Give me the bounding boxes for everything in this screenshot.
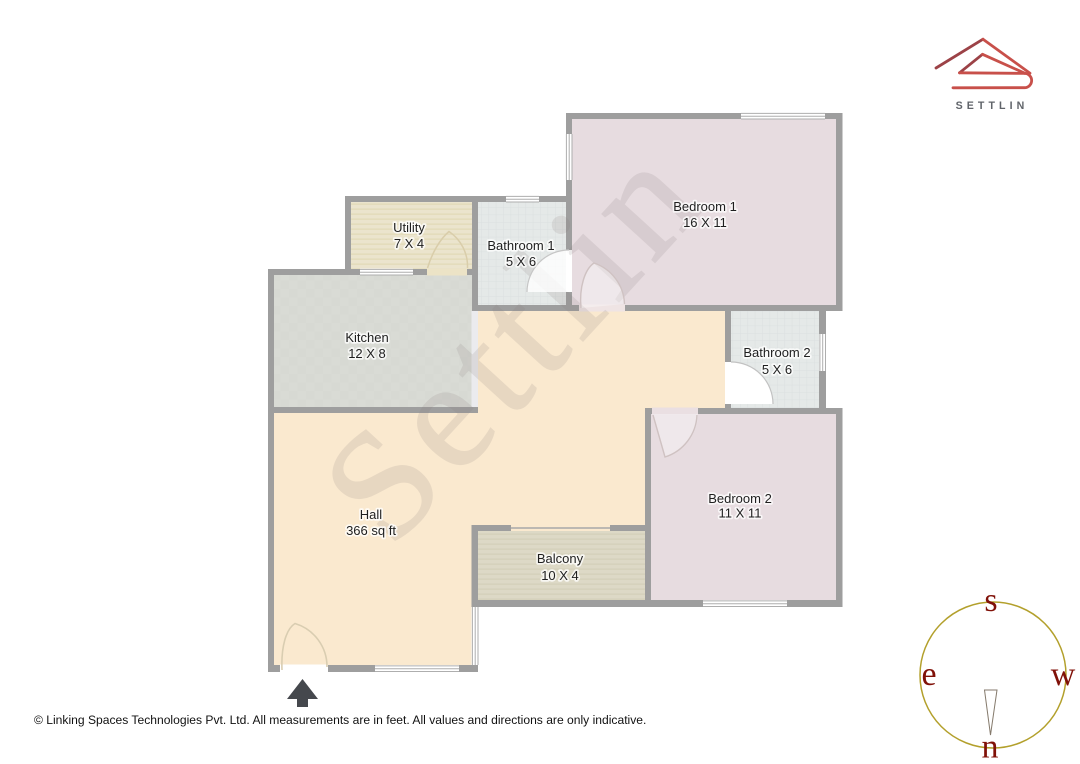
svg-text:7 X 4: 7 X 4 [394, 236, 424, 251]
svg-text:Bedroom 1: Bedroom 1 [673, 199, 737, 214]
svg-text:SETTLIN: SETTLIN [956, 100, 1029, 112]
svg-text:Bathroom 1: Bathroom 1 [487, 238, 554, 253]
svg-text:Hall: Hall [360, 507, 383, 522]
svg-text:Utility: Utility [393, 220, 425, 235]
svg-text:n: n [982, 729, 999, 764]
svg-text:s: s [984, 582, 997, 619]
svg-text:5 X 6: 5 X 6 [762, 362, 792, 377]
svg-text:16 X 11: 16 X 11 [683, 215, 727, 230]
svg-text:Bedroom 2: Bedroom 2 [708, 491, 772, 506]
svg-text:12 X 8: 12 X 8 [348, 346, 386, 361]
svg-text:366 sq ft: 366 sq ft [346, 523, 396, 538]
svg-text:w: w [1051, 656, 1076, 693]
svg-text:Balcony: Balcony [537, 551, 584, 566]
svg-text:e: e [921, 656, 936, 693]
svg-text:Kitchen: Kitchen [345, 330, 388, 345]
svg-text:11 X 11: 11 X 11 [719, 506, 762, 521]
svg-text:10 X 4: 10 X 4 [541, 568, 579, 583]
svg-text:© Linking Spaces Technologies: © Linking Spaces Technologies Pvt. Ltd. … [34, 713, 646, 727]
svg-text:5 X 6: 5 X 6 [506, 254, 536, 269]
svg-text:Bathroom 2: Bathroom 2 [743, 345, 810, 360]
